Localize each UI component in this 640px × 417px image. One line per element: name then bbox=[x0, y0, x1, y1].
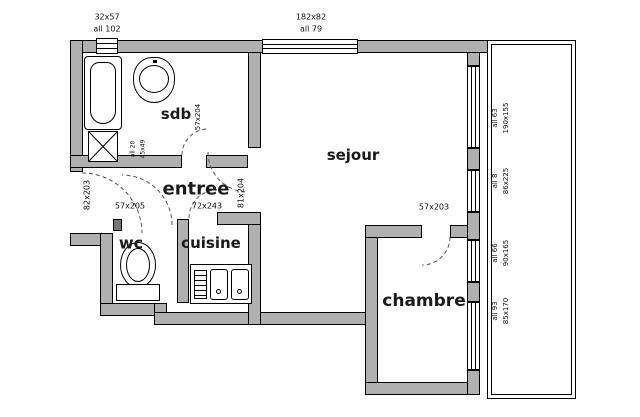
dim-closet-sill: all 20 bbox=[130, 141, 137, 158]
dim-top-window-large-sill: all 79 bbox=[300, 25, 322, 34]
dim-right-window-2-sill: all 8 bbox=[491, 174, 499, 189]
dim-door-chambre: 57x203 bbox=[419, 203, 449, 212]
room-label-sejour: sejour bbox=[327, 146, 380, 164]
dim-right-window-4-sill: all 93 bbox=[491, 301, 499, 320]
wall-mid-upper bbox=[248, 52, 261, 148]
dim-right-window-2-size: 86x225 bbox=[502, 168, 510, 194]
wall-cuisine-left bbox=[177, 219, 189, 303]
wall-right-seg4 bbox=[467, 282, 480, 302]
dim-right-window-4-size: 85x170 bbox=[502, 298, 510, 324]
room-label-chambre: chambre bbox=[382, 291, 465, 311]
window-right-2 bbox=[467, 170, 480, 212]
dim-right-window-1-size: 190x155 bbox=[502, 103, 510, 134]
wall-right-seg2 bbox=[467, 148, 480, 170]
dim-door-sejour: 81x204 bbox=[237, 178, 246, 208]
bathtub bbox=[84, 56, 122, 130]
window-right-4 bbox=[467, 302, 480, 370]
shower-box bbox=[88, 131, 118, 162]
wall-right-seg3 bbox=[467, 212, 480, 240]
room-label-cuisine: cuisine bbox=[181, 234, 241, 252]
dim-top-window-large-size: 182x82 bbox=[296, 13, 326, 22]
window-top-large bbox=[262, 39, 358, 54]
dim-door-sdb: 57x204 bbox=[194, 104, 202, 130]
wall-left-upper bbox=[70, 40, 83, 172]
kitchen-sink bbox=[190, 264, 252, 304]
balcony bbox=[487, 40, 576, 399]
room-label-entree: entree bbox=[163, 179, 230, 200]
dim-door-entry: 72x243 bbox=[192, 202, 222, 211]
wall-sdb-bottom-stub bbox=[206, 155, 248, 168]
dim-closet-size: 45x49 bbox=[140, 140, 147, 159]
wall-chambre-top-right bbox=[450, 225, 468, 238]
wall-chambre-left bbox=[365, 225, 378, 395]
balcony-railing bbox=[491, 44, 572, 395]
dim-door-wc: 57x205 bbox=[115, 202, 145, 211]
window-right-1 bbox=[467, 66, 480, 148]
dim-top-window-small-size: 32x57 bbox=[94, 13, 119, 22]
room-label-sdb: sdb bbox=[161, 105, 191, 123]
washbasin bbox=[133, 57, 175, 103]
dim-right-window-3-size: 90x165 bbox=[502, 240, 510, 266]
dim-right-window-1-sill: all 63 bbox=[491, 108, 499, 127]
window-top-small bbox=[96, 38, 118, 54]
wall-right-seg5 bbox=[467, 370, 480, 395]
dim-right-window-3-sill: all 66 bbox=[491, 243, 499, 262]
wall-bottom-main bbox=[154, 312, 378, 325]
wc-door-post bbox=[113, 219, 122, 231]
toilet-tank bbox=[116, 284, 160, 301]
window-right-3 bbox=[467, 240, 480, 282]
wall-chambre-bottom bbox=[365, 382, 468, 395]
dim-door-left: 82x203 bbox=[83, 180, 92, 210]
wall-sdb-bottom bbox=[70, 155, 182, 168]
wall-right-seg1 bbox=[467, 52, 480, 66]
wall-cuisine-top bbox=[217, 212, 261, 225]
floor-plan: sdb sejour entree wc cuisine chambre 32x… bbox=[0, 0, 640, 417]
wall-chambre-top-left bbox=[365, 225, 422, 238]
room-label-wc: wc bbox=[119, 234, 143, 253]
dim-top-window-small-sill: all 102 bbox=[93, 25, 120, 34]
